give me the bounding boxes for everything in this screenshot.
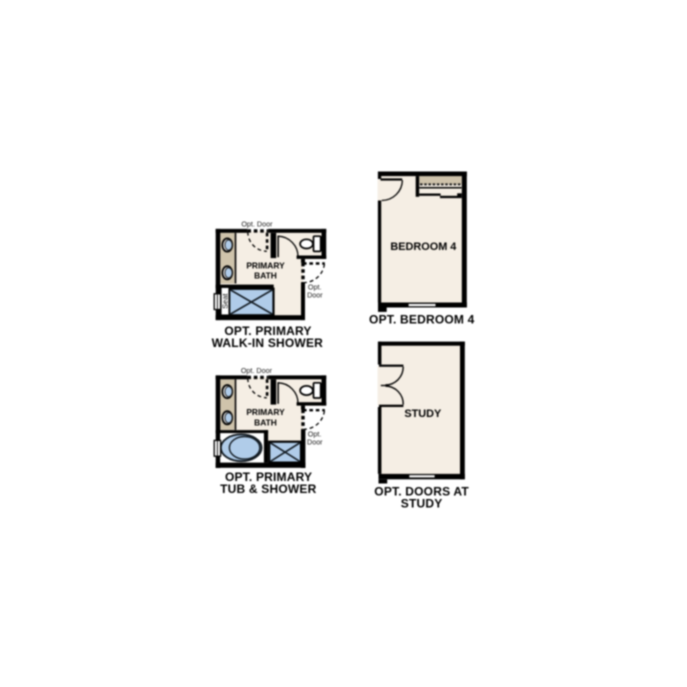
svg-text:Opt. Door: Opt. Door	[241, 220, 273, 229]
svg-text:BATH: BATH	[254, 271, 277, 281]
svg-text:Opt. Door: Opt. Door	[241, 366, 273, 375]
svg-text:PRIMARY: PRIMARY	[246, 260, 285, 270]
svg-text:BATH: BATH	[254, 418, 277, 428]
svg-text:STUDY: STUDY	[401, 496, 443, 510]
svg-text:PRIMARY: PRIMARY	[246, 407, 285, 417]
svg-text:STUDY: STUDY	[404, 408, 442, 420]
svg-text:OPT. BEDROOM 4: OPT. BEDROOM 4	[369, 313, 475, 327]
svg-text:BEDROOM 4: BEDROOM 4	[390, 241, 456, 253]
svg-text:Door: Door	[307, 290, 323, 299]
svg-text:Seat: Seat	[221, 294, 230, 309]
svg-text:Door: Door	[307, 437, 323, 446]
svg-text:TUB & SHOWER: TUB & SHOWER	[220, 482, 317, 496]
svg-text:WALK-IN SHOWER: WALK-IN SHOWER	[212, 336, 324, 350]
